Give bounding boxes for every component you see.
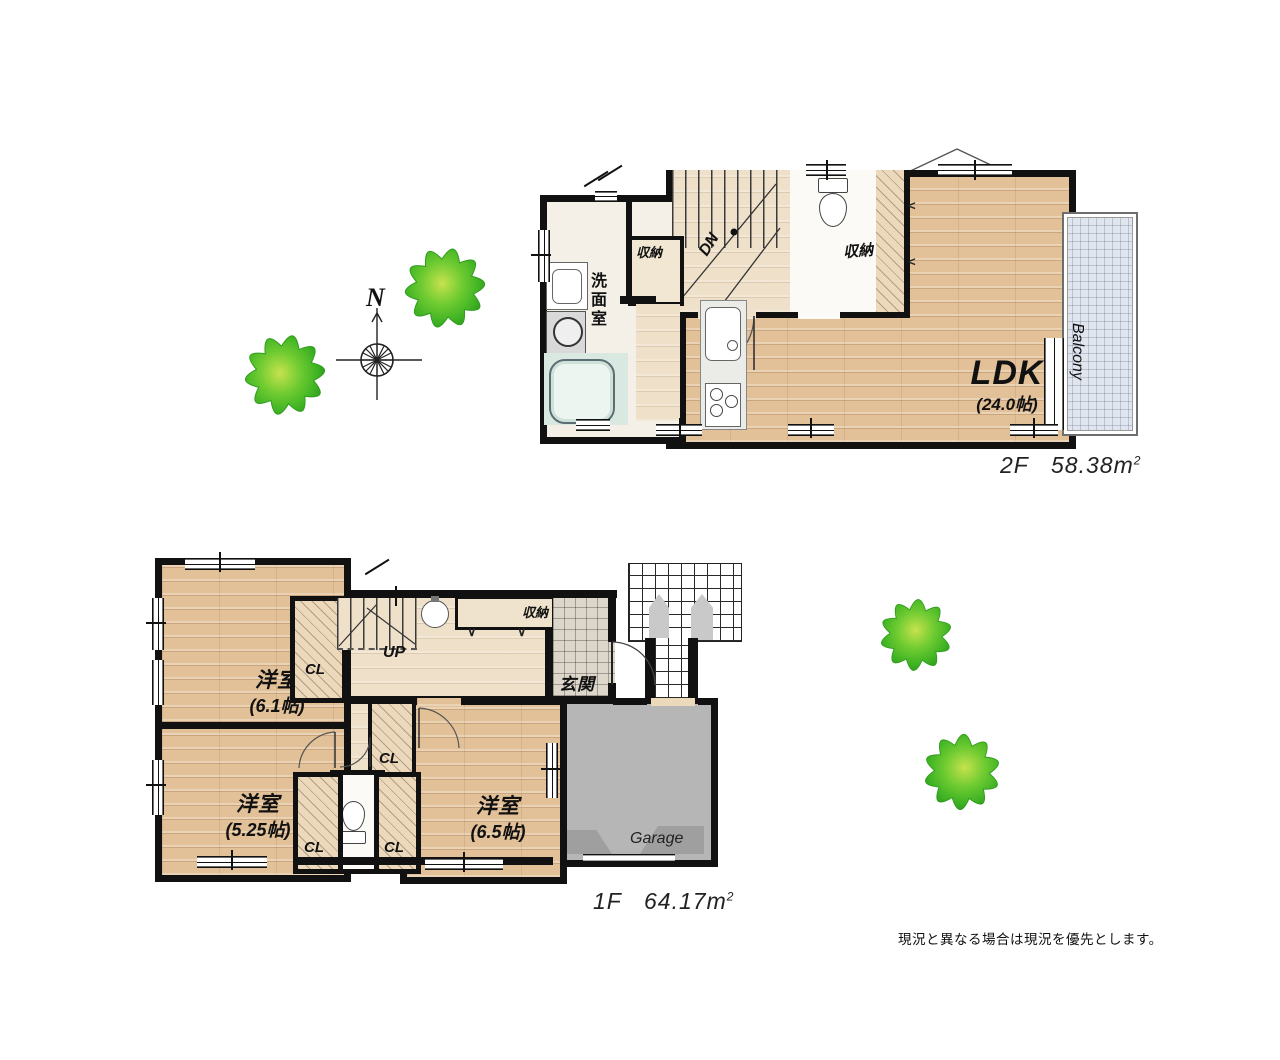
storage-2f-right — [876, 170, 910, 318]
storage-2f-right-label: 収納 — [842, 239, 874, 263]
kitchen-counter — [700, 300, 747, 430]
tree-icon — [230, 320, 340, 430]
dim-tick — [463, 852, 465, 872]
door-arc — [297, 730, 337, 770]
burner — [710, 388, 723, 401]
floor-1f-name: 1F — [593, 888, 622, 914]
floor-2f-area-unit: m — [1114, 452, 1134, 478]
toilet-bowl — [819, 193, 847, 227]
bifold-mark: < — [908, 198, 916, 213]
dim-tick — [541, 768, 561, 770]
floor-2f-area: 2F 58.38m2 — [1000, 452, 1141, 479]
dim-tick — [231, 850, 233, 870]
room-se-name: 洋室 — [443, 796, 553, 818]
vanity-sink — [546, 262, 588, 310]
closet-se-label: CL — [384, 839, 404, 856]
dim-tick — [974, 160, 976, 180]
dim-tick — [219, 552, 221, 572]
bifold-mark: ∨ — [467, 624, 477, 640]
wall — [608, 596, 616, 642]
burner — [725, 395, 738, 408]
faucet-dot — [727, 340, 738, 351]
room-se-size: (6.5帖) — [443, 818, 553, 844]
balcony-label: Balcony — [1068, 323, 1086, 380]
window — [152, 598, 164, 650]
tree-icon — [910, 720, 1014, 824]
dim-tick — [146, 622, 166, 624]
floor-2f-area-sup: 2 — [1134, 453, 1142, 467]
garage: Garage — [548, 698, 718, 867]
window — [595, 191, 617, 202]
wall — [698, 698, 711, 705]
porch-walkway — [655, 638, 688, 698]
vanity-basin — [552, 269, 582, 304]
door-arc — [338, 735, 372, 769]
window — [546, 743, 558, 798]
stairs-up-label: UP — [383, 644, 405, 662]
window — [538, 230, 550, 282]
dim-tick — [1033, 418, 1035, 438]
toilet-icon — [818, 178, 848, 193]
basin-icon — [421, 600, 449, 628]
wall — [608, 683, 616, 704]
floor-2f-plan: Balcony DN 収納 < < 収納 ∨ — [540, 148, 1140, 443]
wall — [293, 857, 553, 865]
planter-shadow — [649, 594, 669, 640]
storage-2f-left-label: 収納 — [636, 242, 662, 261]
disclaimer-note: 現況と異なる場合は現況を優先とします。 — [898, 928, 1163, 948]
dim-tick — [810, 418, 812, 438]
stair-fan — [337, 598, 417, 648]
porch-step — [651, 698, 695, 706]
planter-shadow — [691, 594, 713, 640]
entrance-label: 玄関 — [559, 676, 595, 694]
washing-machine-icon — [546, 311, 586, 355]
floor-2f-name: 2F — [1000, 452, 1029, 478]
toilet-tank — [341, 831, 366, 844]
floor-1f-area-unit: m — [707, 888, 727, 914]
approach-tiles — [628, 563, 742, 642]
svg-text:N: N — [365, 283, 386, 312]
washroom-divider-wall — [626, 202, 632, 298]
washer-drum — [553, 317, 583, 347]
balcony-door — [1044, 338, 1064, 430]
stair-break-lines — [672, 170, 784, 306]
tree-icon — [867, 586, 965, 684]
hall-2f — [636, 304, 680, 421]
garage-door-opening — [583, 854, 675, 862]
bathtub-icon — [549, 359, 615, 424]
compass-icon: N — [330, 282, 426, 404]
closet-nw-label: CL — [305, 661, 325, 678]
room-se-label: 洋室 (6.5帖) — [443, 796, 553, 844]
storage-1f-label: 収納 — [522, 602, 548, 621]
toilet-door-opening — [798, 306, 840, 319]
window — [152, 660, 164, 705]
bifold-mark: < — [908, 254, 916, 269]
window — [152, 760, 164, 815]
break-mark — [598, 165, 623, 181]
door-arc — [417, 706, 461, 750]
garage-label: Garage — [630, 830, 683, 848]
burner — [710, 404, 723, 417]
closet-sw-label: CL — [304, 839, 324, 856]
stairs-2f: DN — [672, 170, 796, 318]
toilet-icon — [342, 801, 365, 831]
floor-1f-area-value: 64.17 — [644, 888, 707, 914]
wall-stub — [620, 296, 656, 304]
entrance-door-arc — [610, 640, 656, 686]
wall — [613, 698, 647, 705]
door-opening — [417, 698, 461, 706]
closet-mid-label: CL — [379, 750, 399, 767]
floor-2f-area-value: 58.38 — [1051, 452, 1114, 478]
floor-1f-area: 1F 64.17m2 — [593, 888, 734, 915]
kitchen-sink-icon — [705, 307, 741, 361]
bifold-mark: ∨ — [517, 624, 527, 640]
washroom-label: 洗面室 — [584, 272, 608, 329]
dim-tick — [146, 784, 166, 786]
break-mark — [584, 171, 609, 187]
dim-tick — [826, 160, 828, 180]
floor-1f-area-sup: 2 — [727, 889, 735, 903]
basin-tap — [431, 596, 439, 602]
dim-tick — [531, 254, 551, 256]
break-mark — [365, 559, 390, 575]
floor-plan-sheet: N Balcony DN — [0, 0, 1280, 1060]
stove-icon — [705, 383, 741, 427]
dim-tick — [395, 586, 397, 606]
wall — [688, 638, 698, 704]
dim-tick — [679, 418, 681, 438]
window — [576, 419, 610, 431]
floor-1f-plan: Garage 洋室 (6.1帖) 洋室 (5.25帖) — [155, 558, 765, 878]
